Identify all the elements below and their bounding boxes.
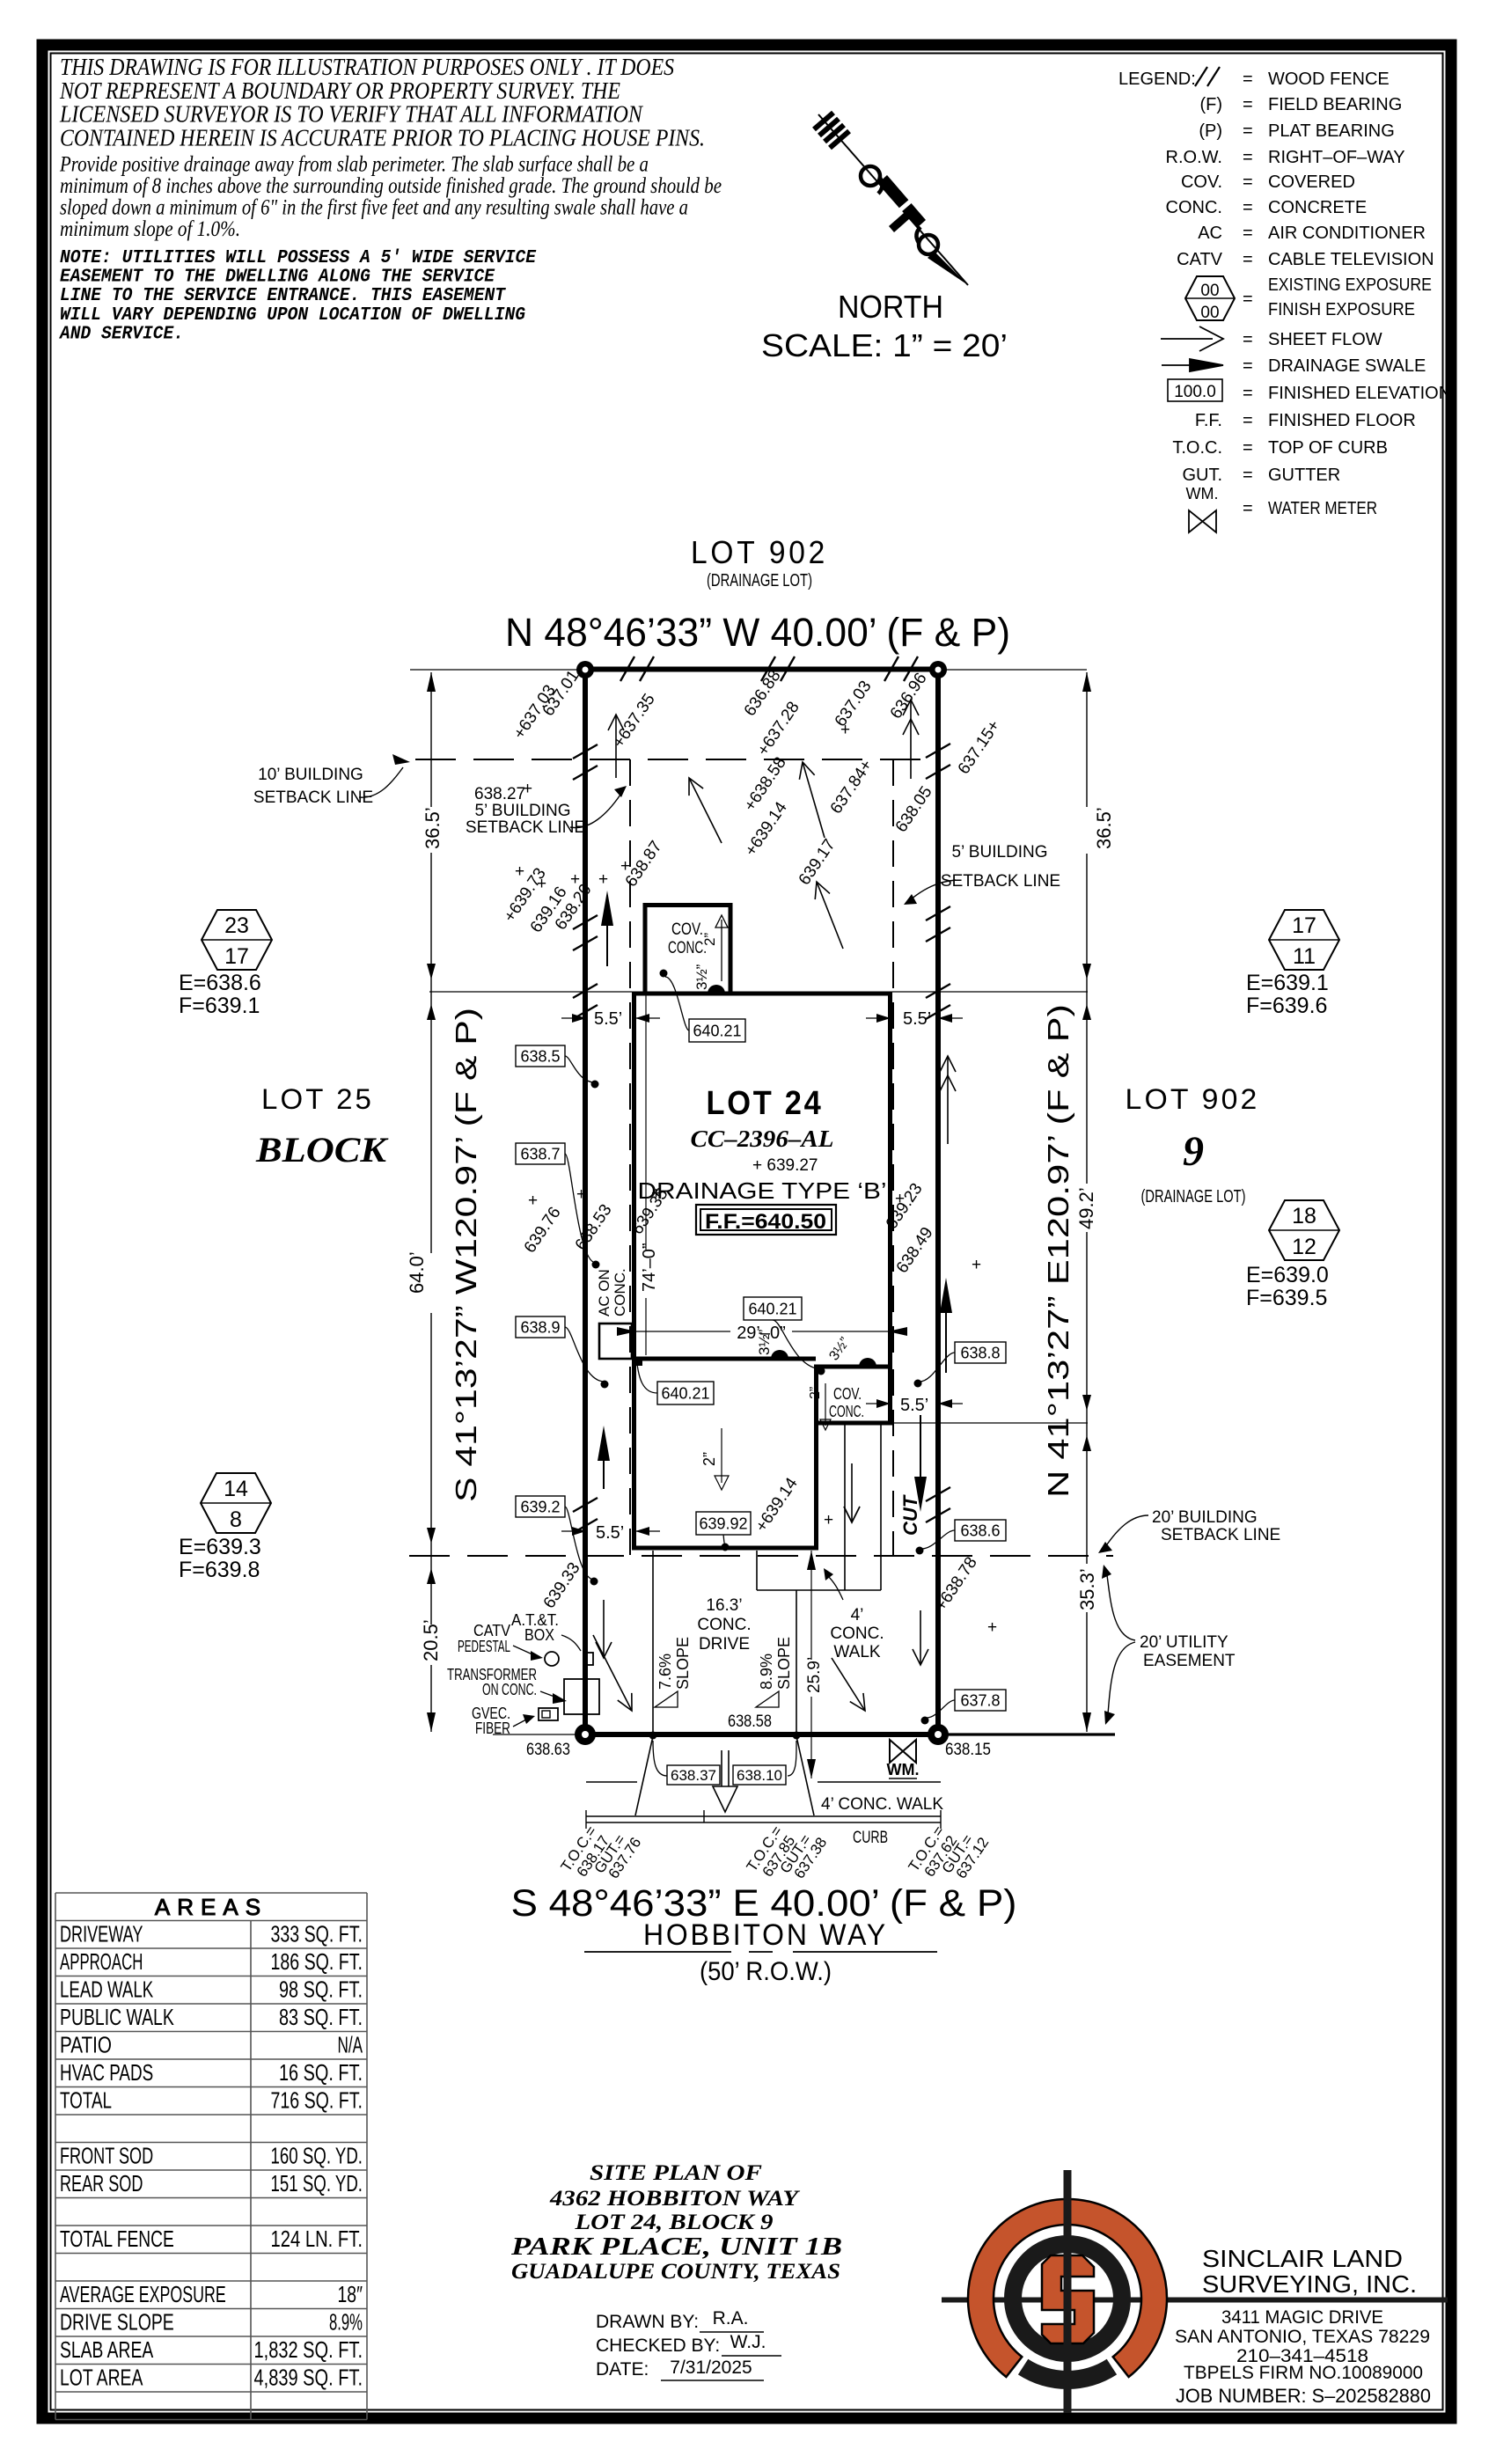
svg-text:SINCLAIR LAND: SINCLAIR LAND <box>1202 2245 1403 2272</box>
svg-text:DRAINAGE SWALE: DRAINAGE SWALE <box>1268 356 1426 376</box>
svg-text:F=639.6: F=639.6 <box>1246 994 1327 1018</box>
svg-text:minimum slope of 1.0%.: minimum slope of 1.0%. <box>60 217 240 241</box>
svg-text:4362 HOBBITON WAY: 4362 HOBBITON WAY <box>549 2187 801 2211</box>
svg-text:10’ BUILDING: 10’ BUILDING <box>258 766 363 784</box>
svg-text:LOT 25: LOT 25 <box>261 1083 374 1115</box>
svg-text:FRONT SOD: FRONT SOD <box>60 2143 153 2169</box>
svg-text:BLOCK: BLOCK <box>255 1130 389 1170</box>
svg-text:BOX: BOX <box>524 1626 554 1644</box>
svg-text:=: = <box>1243 172 1253 192</box>
svg-text:716 SQ. FT.: 716 SQ. FT. <box>271 2087 363 2114</box>
svg-text:638.63: 638.63 <box>526 1741 570 1759</box>
svg-text:LOT 24, BLOCK 9: LOT 24, BLOCK 9 <box>574 2211 774 2234</box>
svg-text:FIBER: FIBER <box>475 1720 510 1737</box>
svg-text:TOP OF CURB: TOP OF CURB <box>1268 438 1388 458</box>
svg-text:638.6: 638.6 <box>960 1522 1000 1539</box>
svg-text:+: + <box>840 721 850 739</box>
svg-text:=: = <box>1243 95 1253 114</box>
svg-text:16 SQ. FT.: 16 SQ. FT. <box>279 2059 363 2086</box>
svg-text:=: = <box>1243 356 1253 376</box>
svg-text:AC ON: AC ON <box>596 1269 612 1316</box>
svg-text:PUBLIC WALK: PUBLIC WALK <box>60 2004 174 2030</box>
svg-text:=: = <box>1243 198 1253 217</box>
svg-text:LOT AREA: LOT AREA <box>60 2365 143 2391</box>
svg-text:LEAD WALK: LEAD WALK <box>60 1976 154 2003</box>
svg-text:CONC.: CONC. <box>830 1624 884 1643</box>
svg-text:7.6%: 7.6% <box>656 1654 674 1690</box>
svg-text:+: + <box>987 1618 997 1637</box>
svg-text:SLOPE: SLOPE <box>775 1637 793 1690</box>
svg-text:7/31/2025: 7/31/2025 <box>670 2358 752 2378</box>
svg-text:CC–2396–AL: CC–2396–AL <box>691 1126 834 1152</box>
svg-text:LINE TO THE SERVICE ENTRANCE.: LINE TO THE SERVICE ENTRANCE. THIS EASEM… <box>60 286 506 306</box>
svg-text:APPROACH: APPROACH <box>60 1948 143 1975</box>
svg-text:CONCRETE: CONCRETE <box>1268 198 1367 217</box>
svg-text:HOBBITON WAY: HOBBITON WAY <box>643 1918 888 1952</box>
svg-text:SITE PLAN OF: SITE PLAN OF <box>590 2161 762 2185</box>
svg-text:=: = <box>1243 499 1253 518</box>
svg-text:124 LN. FT.: 124 LN. FT. <box>271 2226 363 2252</box>
svg-text:3½”: 3½” <box>756 1329 773 1355</box>
svg-text:F=639.8: F=639.8 <box>179 1558 260 1582</box>
svg-text:=: = <box>1243 121 1253 141</box>
svg-text:E=639.0: E=639.0 <box>1246 1263 1329 1287</box>
svg-text:NORTH: NORTH <box>838 289 943 325</box>
svg-text:5.5’: 5.5’ <box>594 1009 622 1029</box>
svg-text:=: = <box>1243 70 1253 89</box>
svg-text:AIR CONDITIONER: AIR CONDITIONER <box>1268 224 1426 243</box>
svg-text:AC: AC <box>1198 224 1222 243</box>
svg-text:9: 9 <box>1183 1128 1204 1175</box>
svg-text:CURB: CURB <box>853 1829 888 1847</box>
svg-text:100.0: 100.0 <box>1174 383 1216 401</box>
svg-text:DRIVEWAY: DRIVEWAY <box>60 1921 143 1947</box>
svg-text:PEDESTAL: PEDESTAL <box>458 1638 510 1655</box>
svg-text:639.2: 639.2 <box>520 1498 560 1515</box>
svg-text:=: = <box>1243 330 1253 349</box>
svg-text:5.5’: 5.5’ <box>900 1396 928 1415</box>
svg-text:GUTTER: GUTTER <box>1268 466 1340 485</box>
svg-text:5.5’: 5.5’ <box>903 1009 931 1029</box>
svg-text:SHEET FLOW: SHEET FLOW <box>1268 330 1382 349</box>
svg-text:R.O.W.: R.O.W. <box>1166 148 1222 167</box>
svg-text:JOB NUMBER: S–202582880: JOB NUMBER: S–202582880 <box>1176 2385 1431 2407</box>
svg-text:+ 639.27: + 639.27 <box>752 1156 818 1175</box>
svg-text:CONTAINED HEREIN IS ACCURATE P: CONTAINED HEREIN IS ACCURATE PRIOR TO PL… <box>60 124 705 150</box>
svg-text:1,832 SQ. FT.: 1,832 SQ. FT. <box>254 2336 363 2363</box>
svg-text:PATIO: PATIO <box>60 2032 112 2058</box>
svg-text:640.21: 640.21 <box>693 1022 741 1039</box>
svg-text:+: + <box>570 870 580 889</box>
svg-text:DATE:: DATE: <box>596 2359 649 2380</box>
svg-text:18: 18 <box>1292 1204 1316 1228</box>
svg-text:=: = <box>1243 250 1253 269</box>
svg-text:GUADALUPE COUNTY, TEXAS: GUADALUPE COUNTY, TEXAS <box>511 2260 840 2284</box>
svg-text:+: + <box>824 1511 833 1529</box>
svg-text:RIGHT–OF–WAY: RIGHT–OF–WAY <box>1268 148 1405 167</box>
svg-text:EASEMENT TO THE DWELLING ALONG: EASEMENT TO THE DWELLING ALONG THE SERVI… <box>60 268 495 288</box>
svg-text:FINISHED FLOOR: FINISHED FLOOR <box>1268 411 1416 430</box>
svg-text:4,839 SQ. FT.: 4,839 SQ. FT. <box>254 2365 363 2391</box>
svg-text:+: + <box>598 870 608 889</box>
svg-text:+: + <box>972 1256 981 1274</box>
svg-text:NOT REPRESENT A BOUNDARY OR PR: NOT REPRESENT A BOUNDARY OR PROPERTY SUR… <box>59 77 620 104</box>
svg-text:638.10: 638.10 <box>737 1767 782 1784</box>
svg-text:333 SQ. FT.: 333 SQ. FT. <box>271 1921 363 1947</box>
svg-text:3411 MAGIC DRIVE: 3411 MAGIC DRIVE <box>1221 2307 1383 2328</box>
svg-text:E=639.3: E=639.3 <box>179 1535 261 1559</box>
svg-text:17: 17 <box>1292 913 1316 938</box>
svg-text:3½”: 3½” <box>693 964 710 990</box>
svg-text:5’ BUILDING: 5’ BUILDING <box>474 802 570 820</box>
svg-text:4’: 4’ <box>851 1606 864 1624</box>
svg-text:COV.: COV. <box>671 920 703 939</box>
svg-text:N 48°46’33” W 40.00’ (F & P): N 48°46’33” W 40.00’ (F & P) <box>505 610 1010 655</box>
svg-text:sloped down a minimum of 6" in: sloped down a minimum of 6" in the first… <box>60 196 688 220</box>
svg-text:637.8: 637.8 <box>960 1691 1000 1709</box>
svg-text:E=639.1: E=639.1 <box>1246 971 1329 995</box>
svg-text:CONC.: CONC. <box>1166 198 1222 217</box>
svg-text:R.A.: R.A. <box>713 2308 749 2328</box>
svg-text:(F): (F) <box>1199 95 1222 114</box>
svg-text:W.J.: W.J. <box>730 2332 766 2352</box>
svg-text:(50’ R.O.W.): (50’ R.O.W.) <box>700 1957 832 1986</box>
svg-text:REAR SOD: REAR SOD <box>60 2170 143 2196</box>
svg-text:DRAWN BY:: DRAWN BY: <box>596 2312 699 2332</box>
svg-text:F=639.1: F=639.1 <box>179 994 260 1018</box>
svg-text:LICENSED SURVEYOR IS TO VERIFY: LICENSED SURVEYOR IS TO VERIFY THAT ALL … <box>59 101 644 128</box>
svg-text:8: 8 <box>230 1507 242 1532</box>
svg-text:EASEMENT: EASEMENT <box>1143 1652 1236 1670</box>
svg-text:64.0’: 64.0’ <box>406 1251 428 1294</box>
svg-text:CHECKED BY:: CHECKED BY: <box>596 2336 720 2356</box>
svg-text:WM.: WM. <box>1186 485 1219 502</box>
svg-text:EXISTING EXPOSURE: EXISTING EXPOSURE <box>1268 275 1432 295</box>
svg-text:SETBACK LINE: SETBACK LINE <box>466 818 585 837</box>
svg-text:DRAINAGE TYPE ‘B’: DRAINAGE TYPE ‘B’ <box>638 1177 887 1204</box>
svg-text:FINISHED ELEVATION: FINISHED ELEVATION <box>1268 384 1451 403</box>
svg-text:638.7: 638.7 <box>520 1145 560 1162</box>
svg-text:638.8: 638.8 <box>960 1344 1000 1361</box>
svg-text:SCALE: 1” = 20’: SCALE: 1” = 20’ <box>761 327 1008 363</box>
svg-text:SLAB AREA: SLAB AREA <box>60 2336 154 2363</box>
svg-text:SETBACK LINE: SETBACK LINE <box>941 872 1060 891</box>
svg-text:8.9%: 8.9% <box>329 2309 363 2336</box>
svg-text:8.9%: 8.9% <box>758 1654 775 1690</box>
svg-text:N 41°13’27” E120.97’ (F & P): N 41°13’27” E120.97’ (F & P) <box>1042 1004 1074 1498</box>
svg-text:36.5’: 36.5’ <box>1093 807 1115 849</box>
svg-text:+: + <box>620 857 630 876</box>
svg-text:5.5’: 5.5’ <box>596 1523 624 1543</box>
svg-text:PLAT BEARING: PLAT BEARING <box>1268 121 1395 141</box>
svg-text:12: 12 <box>1292 1235 1316 1259</box>
svg-text:S 41°13’27” W120.97’ (F & P): S 41°13’27” W120.97’ (F & P) <box>450 1008 482 1502</box>
svg-text:=: = <box>1243 224 1253 243</box>
svg-text:GUT.: GUT. <box>1182 466 1222 485</box>
svg-text:THIS DRAWING IS FOR ILLUSTRATI: THIS DRAWING IS FOR ILLUSTRATION PURPOSE… <box>60 54 674 80</box>
svg-text:+: + <box>528 1192 538 1210</box>
svg-text:+: + <box>651 1184 661 1203</box>
svg-text:CONC.: CONC. <box>697 1616 751 1634</box>
svg-text:COV.: COV. <box>833 1385 862 1403</box>
svg-text:COVERED: COVERED <box>1268 172 1355 192</box>
svg-text:CABLE TELEVISION: CABLE TELEVISION <box>1268 250 1434 269</box>
svg-text:2”: 2” <box>808 1387 823 1399</box>
svg-text:ON CONC.: ON CONC. <box>482 1681 537 1698</box>
svg-text:F.F.=640.50: F.F.=640.50 <box>705 1210 826 1234</box>
svg-text:PARK PLACE, UNIT 1B: PARK PLACE, UNIT 1B <box>510 2233 842 2261</box>
svg-text:AND SERVICE.: AND SERVICE. <box>58 324 184 344</box>
svg-text:=: = <box>1243 148 1253 167</box>
svg-text:14: 14 <box>224 1477 248 1501</box>
svg-text:=: = <box>1243 290 1253 309</box>
svg-text:638.37: 638.37 <box>671 1767 716 1784</box>
svg-text:SURVEYING, INC.: SURVEYING, INC. <box>1202 2270 1417 2298</box>
svg-text:NOTE: UTILITIES WILL POSSESS A: NOTE: UTILITIES WILL POSSESS A 5' WIDE S… <box>60 248 536 268</box>
svg-text:CATV: CATV <box>1177 250 1223 269</box>
svg-text:Provide positive drainage away: Provide positive drainage away from slab… <box>59 153 649 177</box>
svg-text:WALK: WALK <box>833 1643 880 1661</box>
svg-text:+: + <box>515 862 524 881</box>
svg-text:=: = <box>1243 411 1253 430</box>
svg-text:TOTAL FENCE: TOTAL FENCE <box>60 2226 174 2252</box>
svg-text:11: 11 <box>1293 944 1316 969</box>
svg-text:CATV: CATV <box>473 1622 510 1639</box>
svg-text:638.27: 638.27 <box>474 785 525 803</box>
svg-text:AREAS: AREAS <box>155 1894 268 1920</box>
svg-text:SETBACK LINE: SETBACK LINE <box>253 788 373 807</box>
svg-text:2”: 2” <box>700 1452 718 1466</box>
svg-text:83 SQ. FT.: 83 SQ. FT. <box>279 2004 363 2030</box>
svg-text:SETBACK LINE: SETBACK LINE <box>1161 1526 1280 1544</box>
svg-text:LOT 902: LOT 902 <box>691 534 828 570</box>
svg-text:=: = <box>1243 466 1253 485</box>
svg-text:WILL VARY DEPENDING UPON LOCAT: WILL VARY DEPENDING UPON LOCATION OF DWE… <box>60 305 525 326</box>
svg-text:SLOPE: SLOPE <box>674 1637 692 1690</box>
svg-text:LEGEND:: LEGEND: <box>1118 70 1196 89</box>
svg-text:CONC.: CONC. <box>829 1403 864 1420</box>
svg-text:CONC.: CONC. <box>612 1268 628 1316</box>
svg-text:FINISH EXPOSURE: FINISH EXPOSURE <box>1268 300 1415 319</box>
svg-text:2”: 2” <box>701 933 718 946</box>
svg-text:minimum of 8 inches above the: minimum of 8 inches above the surroundin… <box>60 174 722 198</box>
svg-text:WOOD FENCE: WOOD FENCE <box>1268 70 1390 89</box>
svg-text:18″: 18″ <box>338 2281 363 2307</box>
svg-text:E=638.6: E=638.6 <box>179 971 261 995</box>
svg-text:00: 00 <box>1200 282 1219 300</box>
svg-text:35.3’: 35.3’ <box>1076 1568 1098 1610</box>
svg-text:20’ BUILDING: 20’ BUILDING <box>1152 1508 1258 1527</box>
svg-text:(DRAINAGE LOT): (DRAINAGE LOT) <box>707 571 812 590</box>
svg-text:98 SQ. FT.: 98 SQ. FT. <box>279 1976 363 2003</box>
svg-text:AVERAGE EXPOSURE: AVERAGE EXPOSURE <box>60 2281 226 2307</box>
svg-text:LOT 902: LOT 902 <box>1126 1083 1260 1115</box>
svg-text:638.15: 638.15 <box>945 1741 991 1759</box>
svg-text:20.5’: 20.5’ <box>420 1619 442 1661</box>
svg-text:CUT: CUT <box>899 1494 921 1536</box>
svg-text:(DRAINAGE LOT): (DRAINAGE LOT) <box>1141 1187 1246 1206</box>
svg-text:5’ BUILDING: 5’ BUILDING <box>951 843 1047 862</box>
svg-text:WATER METER: WATER METER <box>1268 499 1377 518</box>
svg-text:4’ CONC. WALK: 4’ CONC. WALK <box>821 1795 943 1814</box>
svg-text:T.O.C.: T.O.C. <box>1172 438 1222 458</box>
svg-text:WM.: WM. <box>887 1761 920 1778</box>
svg-text:17: 17 <box>224 944 249 969</box>
svg-text:23: 23 <box>224 913 249 938</box>
svg-text:36.5’: 36.5’ <box>422 807 444 849</box>
svg-text:SAN ANTONIO, TEXAS 78229: SAN ANTONIO, TEXAS 78229 <box>1175 2327 1430 2347</box>
svg-text:=: = <box>1243 384 1253 403</box>
svg-text:F=639.5: F=639.5 <box>1246 1286 1327 1310</box>
svg-text:640.21: 640.21 <box>748 1300 796 1317</box>
svg-text:638.58: 638.58 <box>728 1712 772 1731</box>
svg-text:640.21: 640.21 <box>661 1384 709 1402</box>
svg-text:F.F.: F.F. <box>1195 411 1222 430</box>
svg-text:49.2’: 49.2’ <box>1075 1187 1097 1229</box>
svg-text:639.92: 639.92 <box>699 1514 747 1532</box>
svg-text:+: + <box>537 875 546 893</box>
svg-text:HVAC PADS: HVAC PADS <box>60 2059 153 2086</box>
svg-text:186 SQ. FT.: 186 SQ. FT. <box>271 1948 363 1975</box>
svg-text:(P): (P) <box>1199 121 1222 141</box>
svg-text:160 SQ. YD.: 160 SQ. YD. <box>271 2143 363 2169</box>
svg-text:74’–0”: 74’–0” <box>640 1243 659 1292</box>
svg-text:+: + <box>576 1185 586 1204</box>
svg-text:COV.: COV. <box>1181 172 1222 192</box>
svg-text:=: = <box>1243 438 1253 458</box>
svg-text:00: 00 <box>1200 304 1219 322</box>
svg-text:LOT 24: LOT 24 <box>707 1085 824 1122</box>
svg-text:638.5: 638.5 <box>520 1047 560 1065</box>
svg-text:20’ UTILITY: 20’ UTILITY <box>1140 1633 1228 1652</box>
svg-text:+: + <box>895 1190 905 1208</box>
svg-text:N/A: N/A <box>338 2032 363 2058</box>
svg-text:DRIVE SLOPE: DRIVE SLOPE <box>60 2309 174 2336</box>
svg-text:DRIVE: DRIVE <box>699 1635 750 1654</box>
svg-text:25.9’: 25.9’ <box>805 1657 824 1693</box>
svg-text:151 SQ. YD.: 151 SQ. YD. <box>271 2170 363 2196</box>
svg-text:638.9: 638.9 <box>520 1318 560 1336</box>
svg-text:FIELD BEARING: FIELD BEARING <box>1268 95 1402 114</box>
svg-text:TOTAL: TOTAL <box>60 2087 112 2114</box>
svg-text:16.3’: 16.3’ <box>706 1596 742 1615</box>
svg-text:TBPELS FIRM NO.10089000: TBPELS FIRM NO.10089000 <box>1184 2363 1423 2383</box>
